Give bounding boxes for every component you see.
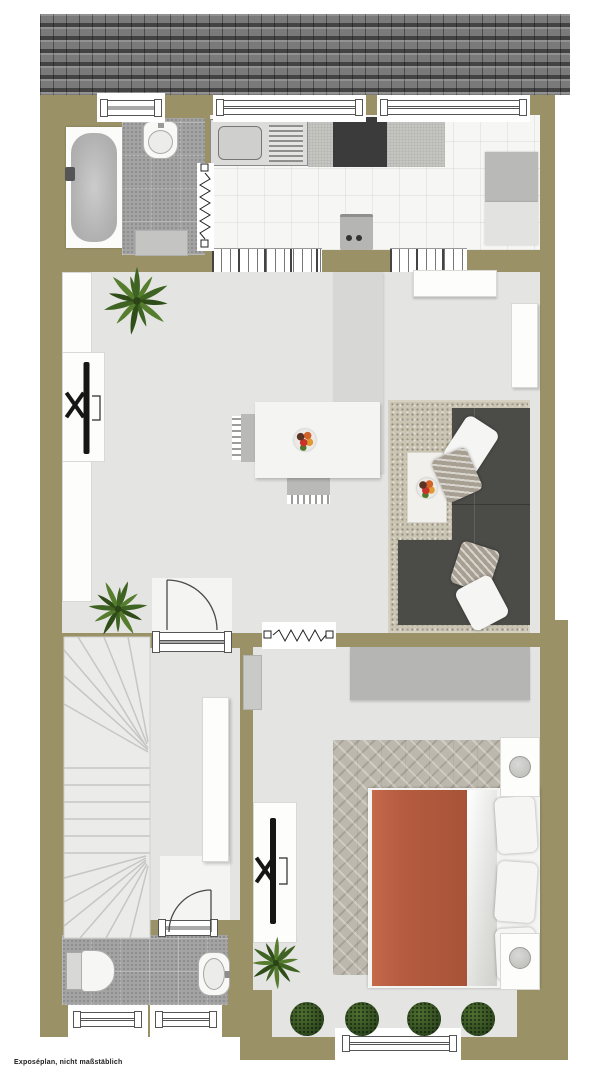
linework-overlay bbox=[0, 0, 608, 1080]
radiator-kitchen bbox=[200, 164, 210, 247]
door-hall-top bbox=[167, 580, 217, 630]
plant-living bbox=[103, 267, 168, 335]
door-bathroom-bottom bbox=[169, 890, 211, 932]
plant-bedroom bbox=[239, 926, 312, 999]
plant-hallway bbox=[81, 571, 154, 646]
disclaimer-text: Exposéplan, nicht maßstäblich bbox=[14, 1059, 123, 1066]
staircase bbox=[64, 637, 150, 938]
tv-icon-bedroom bbox=[255, 818, 287, 924]
floor-plan: Exposéplan, nicht maßstäblich bbox=[0, 0, 608, 1080]
tv-icon-living bbox=[65, 362, 100, 454]
radiator-bedroom bbox=[264, 630, 333, 641]
